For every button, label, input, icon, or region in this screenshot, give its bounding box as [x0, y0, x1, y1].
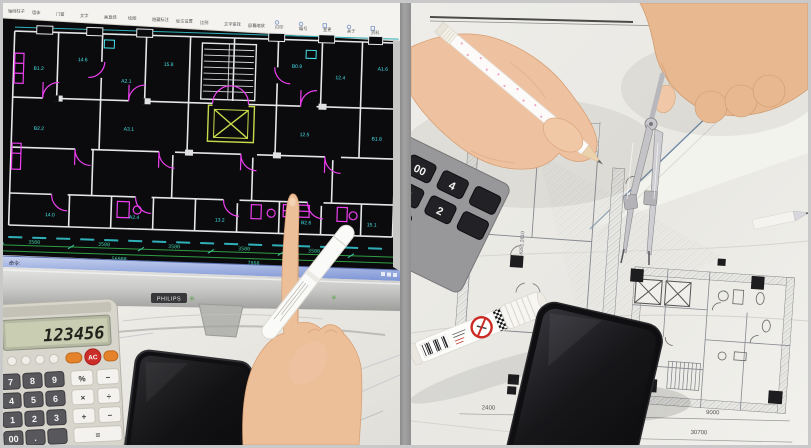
- calc-key-orange[interactable]: [66, 352, 83, 363]
- toolbar-item[interactable]: 屏幕缩放: [248, 22, 266, 29]
- calc-key-5[interactable]: 5: [31, 395, 37, 405]
- right-hand: [640, 3, 808, 123]
- right-photo-canvas: 2000 4351.2610 05.614.02: [411, 3, 808, 445]
- calc-key-4[interactable]: 4: [9, 396, 15, 406]
- toolbar-item[interactable]: 标注设置: [176, 18, 193, 25]
- two-photo-collage: 轴网柱子 墙体 门窗 文字 画直线 绘图 隐藏标注 标注设置 比例 文字查找 屏…: [0, 0, 811, 448]
- dim-label: 3500: [168, 244, 180, 250]
- calc-key-dot[interactable]: .: [34, 433, 37, 443]
- calc-key-9[interactable]: 9: [52, 375, 58, 385]
- dim-label: 3500: [98, 242, 110, 248]
- room-label: A3.1: [124, 127, 135, 133]
- calc-key-ac-label: AC: [88, 354, 98, 361]
- monitor-right-bezel: [393, 40, 400, 271]
- calc-key-plus[interactable]: +: [81, 412, 86, 421]
- room-label: B2.2: [34, 126, 45, 132]
- calc-key-minus[interactable]: −: [105, 373, 110, 382]
- calc-key-00[interactable]: 00: [8, 434, 19, 445]
- calc-key-orange[interactable]: [104, 351, 119, 362]
- room-label: 15.1: [367, 222, 377, 228]
- toolbar-item[interactable]: 轴网柱子: [8, 8, 25, 15]
- calc-key-7[interactable]: 7: [8, 377, 14, 387]
- calc-key-minus2[interactable]: −: [107, 411, 112, 420]
- room-label: B1.2: [33, 66, 44, 72]
- calculator-display: 123456: [43, 323, 105, 346]
- room-label: A2.4: [129, 215, 140, 221]
- room-label: A2.1: [121, 78, 132, 84]
- dim-2400-label: 2400: [482, 405, 496, 411]
- toolbar-item[interactable]: 文字查找: [224, 20, 242, 27]
- room-label: B1.8: [371, 136, 382, 142]
- room-label: 15.8: [164, 62, 174, 68]
- room-label: 12.4: [335, 75, 345, 81]
- dim-label: 3500: [308, 248, 320, 254]
- room-label: 12.5: [300, 132, 310, 138]
- room-label: 14.0: [45, 212, 55, 218]
- toolbar-item[interactable]: 门窗: [56, 10, 64, 17]
- toolbar-item[interactable]: 文字: [80, 12, 88, 19]
- calc-key-equals[interactable]: =: [95, 431, 100, 440]
- toolbar-item[interactable]: 绘图: [128, 15, 136, 22]
- toolbar-item[interactable]: 画直线: [104, 13, 117, 20]
- calc-key-multiply[interactable]: ×: [80, 393, 85, 402]
- room-label: B2.6: [301, 220, 312, 226]
- calc-key-8[interactable]: 8: [30, 376, 36, 386]
- left-photo-canvas: 轴网柱子 墙体 门窗 文字 画直线 绘图 隐藏标注 标注设置 比例 文字查找 屏…: [3, 3, 400, 445]
- calc-key-1[interactable]: 1: [10, 415, 16, 425]
- room-label: 14.6: [78, 57, 88, 63]
- left-photo-cad-monitor: 轴网柱子 墙体 门窗 文字 画直线 绘图 隐藏标注 标注设置 比例 文字查找 屏…: [3, 3, 400, 445]
- command-prompt[interactable]: 命令:: [9, 260, 20, 267]
- toolbar-item[interactable]: 比例: [200, 19, 208, 26]
- toolbar-item[interactable]: 墙体: [32, 9, 41, 16]
- toolbar-item[interactable]: 隐藏标注: [152, 16, 170, 23]
- dim-9000-label: 9000: [706, 410, 720, 416]
- calc-key-2[interactable]: 2: [32, 414, 38, 424]
- photo-divider: [400, 3, 411, 445]
- right-photo-blueprint-desk: 2000 4351.2610 05.614.02: [411, 3, 808, 445]
- room-label: A1.6: [378, 67, 389, 73]
- monitor-brand-label: PHILIPS: [157, 297, 181, 303]
- plant-sprig-icon: ✳: [189, 295, 195, 303]
- calc-key-6[interactable]: 6: [53, 394, 59, 404]
- dim-label: 3500: [238, 246, 250, 252]
- room-label: 13.2: [215, 217, 225, 223]
- calc-key-percent[interactable]: %: [78, 374, 86, 383]
- dim-30700-label: 30700: [691, 430, 708, 436]
- dim-label: 3500: [28, 240, 40, 246]
- room-label: B0.9: [292, 64, 303, 70]
- calculator: 123456 AC 7 8 9 4 5: [3, 299, 125, 445]
- plant-sprig-icon: ✳: [331, 294, 337, 302]
- calc-key-3[interactable]: 3: [54, 413, 60, 423]
